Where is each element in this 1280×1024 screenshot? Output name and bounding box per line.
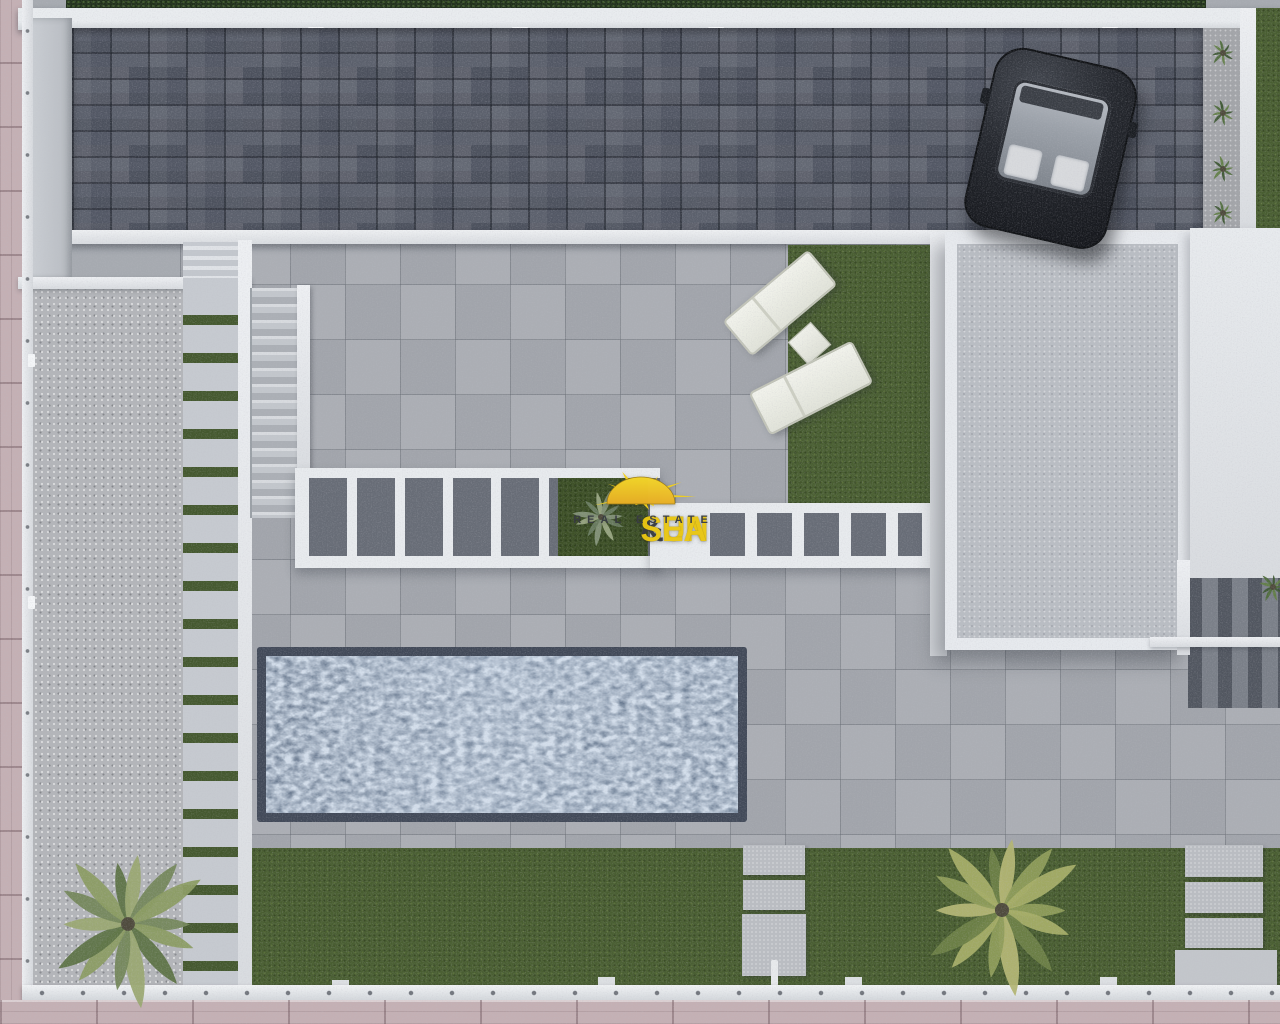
sidewalk-left: [0, 0, 22, 1024]
car-dashboard: [1019, 85, 1104, 120]
pool-water: [266, 656, 738, 813]
fence-threshold: [845, 977, 862, 985]
shrub-plant: [1206, 196, 1240, 230]
watermark-logo: SUN & SEA REAL ESTATE: [538, 454, 743, 526]
stepping-stone: [1185, 882, 1263, 913]
stepping-stone: [1185, 845, 1263, 877]
car-glass-roof: [993, 78, 1113, 201]
car-mirror: [979, 87, 991, 105]
car-seat: [1050, 155, 1090, 193]
gate-hinge: [28, 354, 35, 367]
shrub-plant: [1206, 36, 1240, 70]
shrub-plant: [1206, 152, 1240, 186]
walkway-steps: [183, 246, 238, 278]
boundary-wall-right: [1240, 8, 1256, 232]
stair-railing: [297, 285, 310, 483]
boundary-wall-top: [18, 8, 1280, 30]
pergola-beam-horizontal: [1150, 637, 1280, 647]
secondary-roof: [1190, 228, 1280, 578]
palm-tree-left: [36, 832, 220, 1016]
boundary-fence-left: [22, 0, 33, 990]
gate-hinge: [28, 596, 35, 609]
shrub-plant: [1206, 96, 1240, 130]
stepping-stone: [743, 845, 805, 875]
swimming-pool: [257, 647, 747, 822]
exterior-staircase: [250, 288, 298, 518]
sun-logo-icon: [581, 454, 701, 510]
corner-shrub: [1254, 568, 1280, 606]
fence-threshold: [1100, 977, 1117, 985]
palm-tree-right: [908, 816, 1096, 1004]
water-texture: [266, 656, 738, 813]
garden-fixture: [771, 960, 778, 986]
car-seat: [1003, 144, 1043, 182]
stepping-stone: [743, 880, 805, 910]
fence-threshold: [598, 977, 615, 985]
brand-tagline: REAL ESTATE: [538, 514, 743, 526]
main-roof: [945, 232, 1190, 650]
stepping-stone: [1185, 918, 1263, 948]
villa-aerial-render: SUN & SEA REAL ESTATE: [0, 0, 1280, 1024]
lawn-strip-top-right: [1256, 8, 1280, 232]
